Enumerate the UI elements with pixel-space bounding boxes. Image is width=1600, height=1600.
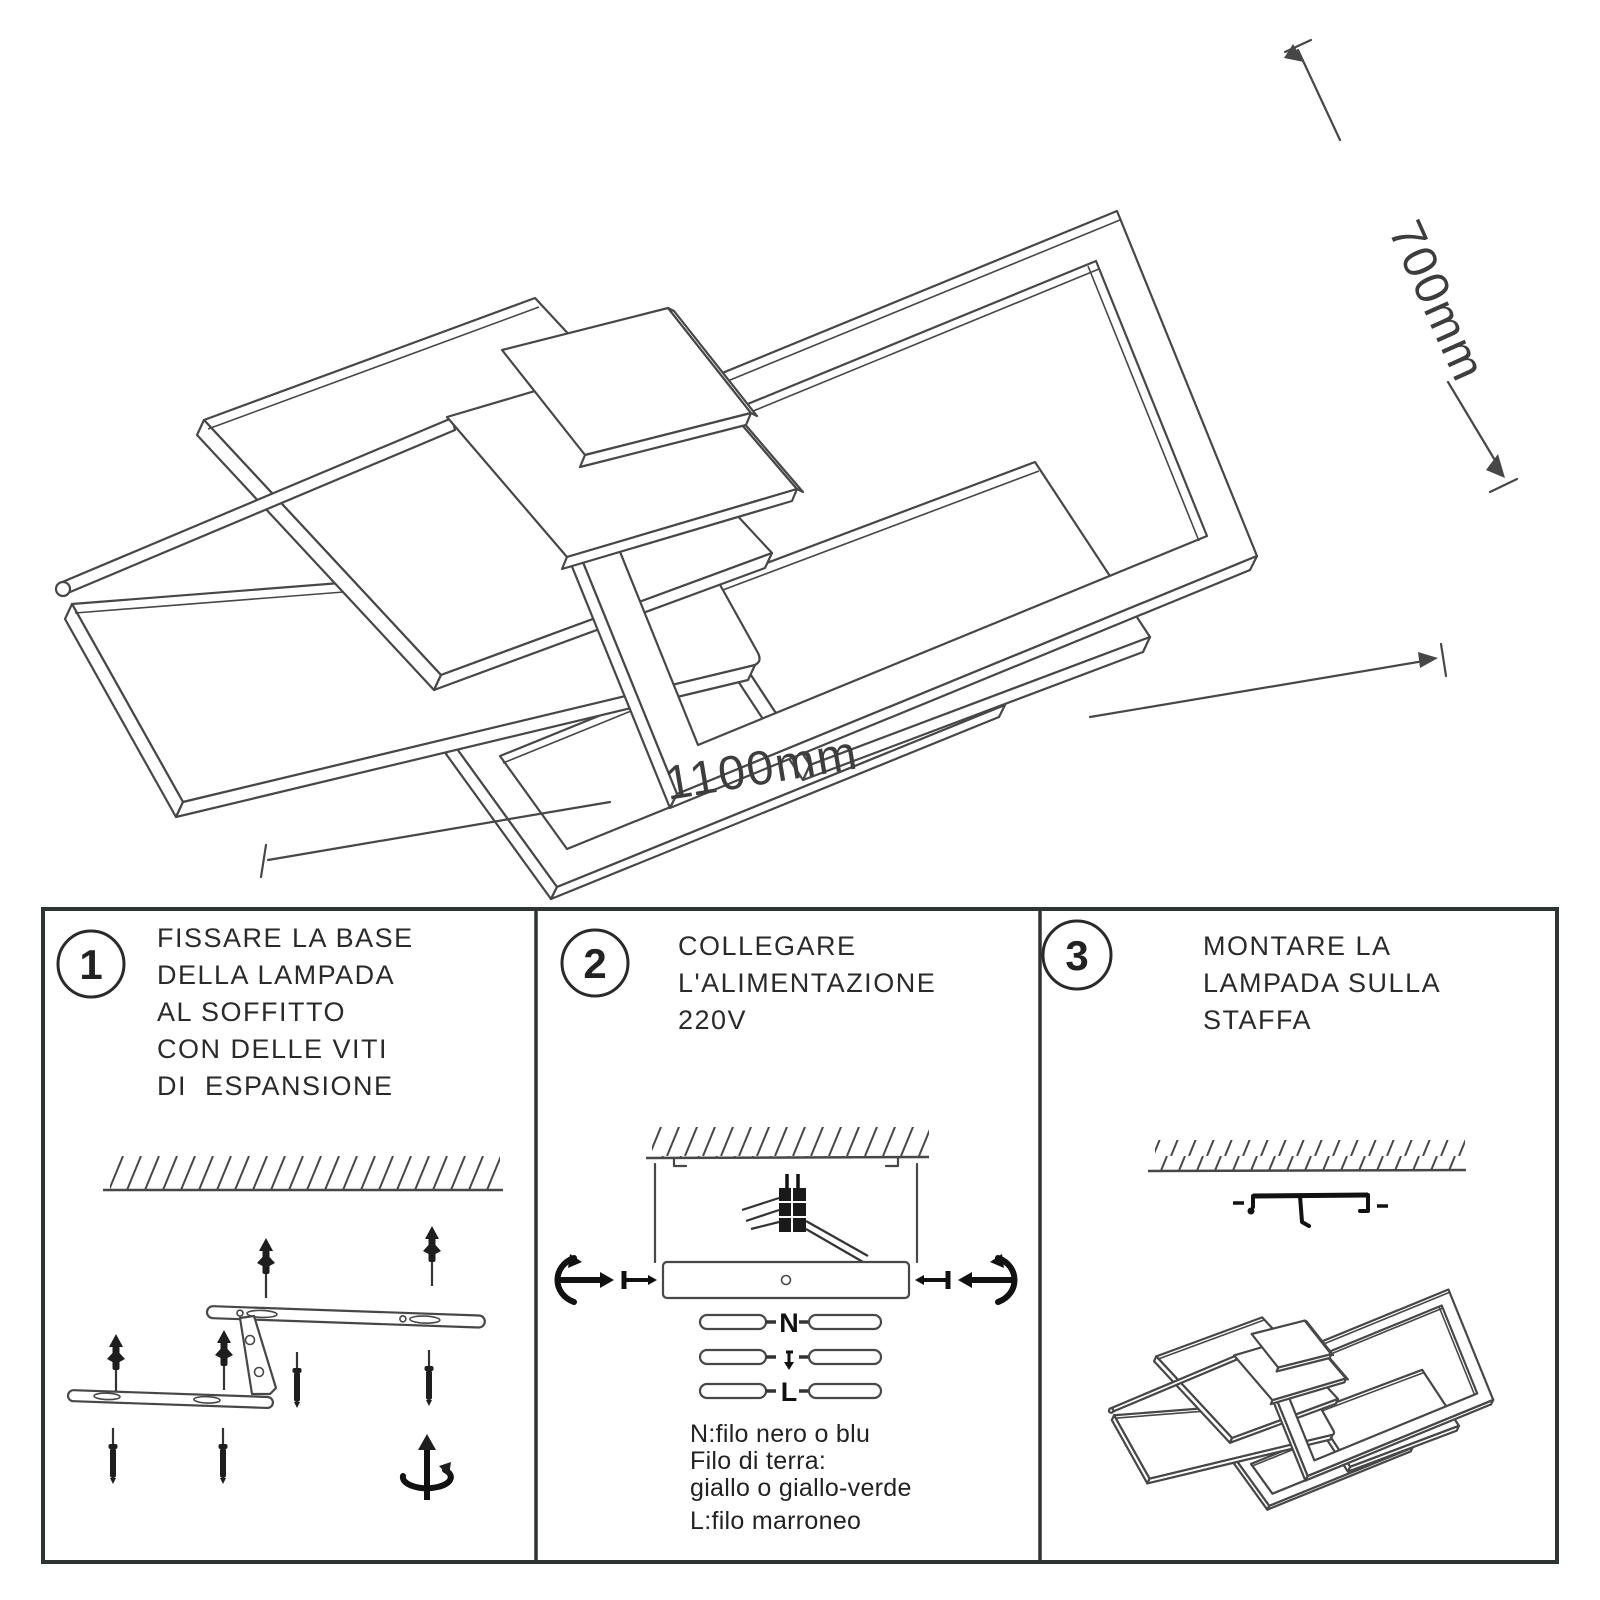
ceiling-hook-right [886, 1158, 898, 1166]
wiring-notes: N:filo nero o blu Filo di terra: giallo … [690, 1421, 912, 1535]
earth-icon [784, 1352, 794, 1370]
wiring-note-line: L:filo marroneo [690, 1508, 912, 1535]
mounting-bracket-icon [1233, 1195, 1388, 1226]
ceiling-hook-left [674, 1158, 686, 1166]
step1-line: AL SOFFITTO [157, 994, 414, 1031]
terminal-l-label: L [781, 1377, 798, 1407]
step2-text: COLLEGARE L'ALIMENTAZIONE 220V [678, 928, 936, 1039]
link-bracket [240, 1316, 276, 1394]
step1-line: DI ESPANSIONE [157, 1068, 414, 1105]
step3-badge: 3 [1043, 921, 1111, 989]
sheet-graphics: 700mm 1100mm 1 2 3 [0, 0, 1600, 1600]
mounting-base-bar [663, 1262, 909, 1298]
step1-badge: 1 [58, 931, 124, 997]
step1-line: FISSARE LA BASE [157, 920, 414, 957]
ceiling-hatch-icon [1148, 1140, 1466, 1171]
step3-diagram [1109, 1140, 1493, 1510]
step3-text: MONTARE LA LAMPADA SULLA STAFFA [1203, 928, 1441, 1039]
mounting-bar-lower [68, 1390, 273, 1408]
step1-diagram [68, 1156, 503, 1500]
wiring-note-line: Filo di terra: [690, 1448, 912, 1475]
step2-line: L'ALIMENTAZIONE [678, 965, 936, 1002]
wiring-note-line: N:filo nero o blu [690, 1421, 912, 1448]
step2-number: 2 [583, 940, 606, 987]
step3-line: STAFFA [1203, 1002, 1441, 1039]
step2-diagram: N L [556, 1127, 1016, 1407]
step1-number: 1 [79, 941, 102, 988]
dimension-700: 700mm [1284, 40, 1517, 492]
ceiling-hatch-icon [646, 1127, 929, 1158]
step2-line: COLLEGARE [678, 928, 936, 965]
step1-line: DELLA LAMPADA [157, 957, 414, 994]
height-dimension-label: 700mm [1378, 213, 1496, 390]
step3-number: 3 [1065, 932, 1088, 979]
step1-line: CON DELLE VITI [157, 1031, 414, 1068]
step2-badge: 2 [562, 930, 628, 996]
step3-line: LAMPADA SULLA [1203, 965, 1441, 1002]
instruction-sheet: 700mm 1100mm 1 2 3 [0, 0, 1600, 1600]
ceiling-hatch-icon [103, 1156, 503, 1190]
lamp-miniature [1109, 1290, 1493, 1510]
step2-line: 220V [678, 1002, 936, 1039]
step3-line: MONTARE LA [1203, 928, 1441, 965]
step1-text: FISSARE LA BASE DELLA LAMPADA AL SOFFITT… [157, 920, 414, 1105]
junction-box-icon [742, 1174, 868, 1262]
terminal-n-label: N [779, 1308, 799, 1338]
wiring-note-line: giallo o giallo-verde [690, 1475, 912, 1502]
